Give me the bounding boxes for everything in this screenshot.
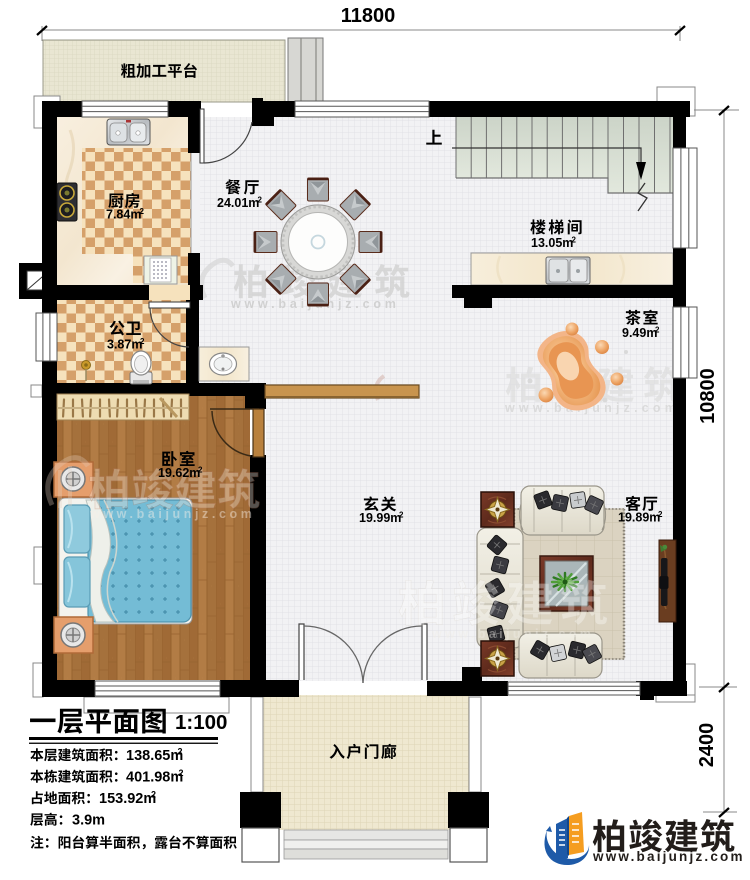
svg-text:2: 2 xyxy=(140,337,145,346)
svg-text:138.65m: 138.65m xyxy=(126,748,183,764)
svg-text:1:100: 1:100 xyxy=(175,711,227,734)
svg-text:9.49m: 9.49m xyxy=(622,326,657,340)
svg-text:3.9m: 3.9m xyxy=(72,813,105,829)
svg-text:www.baijunjz.com: www.baijunjz.com xyxy=(431,627,594,641)
svg-text:19.99m: 19.99m xyxy=(359,511,401,525)
svg-text:7.84m: 7.84m xyxy=(106,208,141,222)
svg-text:2: 2 xyxy=(655,326,660,335)
svg-text:2: 2 xyxy=(572,236,577,245)
svg-text:2: 2 xyxy=(179,768,184,778)
svg-text:2: 2 xyxy=(399,511,404,520)
svg-text:3.87m: 3.87m xyxy=(107,338,142,352)
svg-text:153.92m: 153.92m xyxy=(99,791,156,807)
svg-text:24.01m: 24.01m xyxy=(217,196,259,210)
svg-text:2: 2 xyxy=(178,747,183,757)
svg-text:www.baijunjz.com: www.baijunjz.com xyxy=(592,849,745,864)
svg-text:2: 2 xyxy=(140,207,145,216)
svg-text:2: 2 xyxy=(151,790,156,800)
svg-text:13.05m: 13.05m xyxy=(531,236,573,250)
svg-text:11800: 11800 xyxy=(341,5,396,27)
svg-text:401.98m: 401.98m xyxy=(126,770,183,786)
svg-text:2: 2 xyxy=(258,196,263,205)
svg-text:19.62m: 19.62m xyxy=(158,466,200,480)
svg-text:2: 2 xyxy=(198,466,203,475)
svg-text:10800: 10800 xyxy=(697,368,719,424)
svg-text:2: 2 xyxy=(658,510,663,519)
svg-text:2400: 2400 xyxy=(696,723,718,768)
svg-text:www.baijunjz.com: www.baijunjz.com xyxy=(89,507,255,521)
svg-text:19.89m: 19.89m xyxy=(618,511,660,525)
